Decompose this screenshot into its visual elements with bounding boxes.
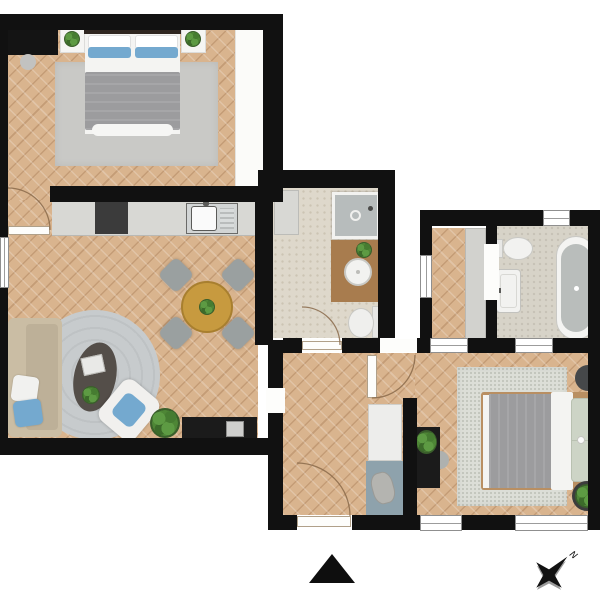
wall <box>0 14 283 30</box>
stool <box>20 54 36 70</box>
wardrobe <box>8 28 58 55</box>
washbasin-drain-icon <box>356 270 360 274</box>
plant-icon <box>185 31 201 47</box>
bedroom-1-door <box>8 226 50 235</box>
wall <box>342 338 380 353</box>
table-plant-icon <box>199 299 215 315</box>
bed-2-duvet <box>489 394 553 488</box>
wall <box>588 210 600 530</box>
coffee-table-plant-icon <box>82 386 100 404</box>
wall <box>0 288 8 455</box>
bedroom-2-bottom-window-2 <box>515 515 588 531</box>
bed-1-duvet <box>85 72 180 130</box>
floor-plan: N <box>0 0 600 600</box>
bathroom-2-opening <box>484 244 499 300</box>
wall <box>486 210 497 244</box>
sink-drainer <box>220 208 234 229</box>
wall <box>268 340 283 388</box>
corridor-door-threshold <box>380 339 417 352</box>
wall <box>462 515 515 530</box>
bed-1-pillow-blue-left <box>88 47 131 58</box>
wall <box>553 338 588 353</box>
hall-cabinet <box>368 404 402 461</box>
plant-icon <box>64 31 80 47</box>
cooktop <box>95 202 128 234</box>
corridor-window <box>420 255 432 298</box>
bed-2-sheet-fold <box>551 392 573 490</box>
bed-2-lamp-icon <box>577 436 585 444</box>
washbasin-2-inner <box>500 274 517 308</box>
wall <box>268 413 283 530</box>
wall <box>588 515 600 530</box>
entrance-triangle-icon <box>309 554 355 583</box>
bed-1-pillow-blue-right <box>135 47 178 58</box>
wall <box>0 438 283 455</box>
sink-basin <box>191 206 217 231</box>
bed-1-foot-sheet <box>92 124 173 136</box>
toilet-2-bowl <box>503 237 533 260</box>
corridor-closet <box>465 228 486 340</box>
floor-plant-icon <box>150 408 180 438</box>
bathroom-2-window <box>543 210 570 226</box>
wall <box>255 188 273 345</box>
tv <box>226 421 244 437</box>
wall <box>403 398 417 530</box>
toilet-1-bowl <box>348 308 374 338</box>
sofa-pillow-blue <box>12 398 43 428</box>
vanity-plant-icon <box>356 242 372 258</box>
wall <box>0 30 8 237</box>
living-hall-opening <box>266 388 285 413</box>
corridor-floor <box>432 228 465 353</box>
wall <box>283 515 297 530</box>
bedroom-2-top-window-2 <box>515 338 553 353</box>
tv-stand <box>182 417 257 439</box>
wall <box>50 186 265 202</box>
desk-plant-icon <box>416 430 437 454</box>
wall <box>258 170 395 188</box>
wall <box>417 338 430 353</box>
bathroom-1-door <box>302 341 342 350</box>
wall <box>420 210 543 226</box>
wall <box>283 338 302 353</box>
wall <box>378 188 395 338</box>
bedroom-2-top-window-1 <box>430 338 468 353</box>
north-label: N <box>567 550 579 562</box>
bathtub-drain-icon <box>574 286 579 291</box>
entry-door <box>297 516 351 527</box>
shower-head-icon <box>368 206 373 211</box>
shower-drain-icon <box>350 210 361 221</box>
living-room-window <box>0 237 9 288</box>
bedroom-2-bottom-window-1 <box>420 515 462 531</box>
wall <box>468 338 515 353</box>
compass-rose-icon: N <box>517 543 583 600</box>
corridor-door <box>367 355 377 398</box>
built-in-closet <box>235 30 263 188</box>
